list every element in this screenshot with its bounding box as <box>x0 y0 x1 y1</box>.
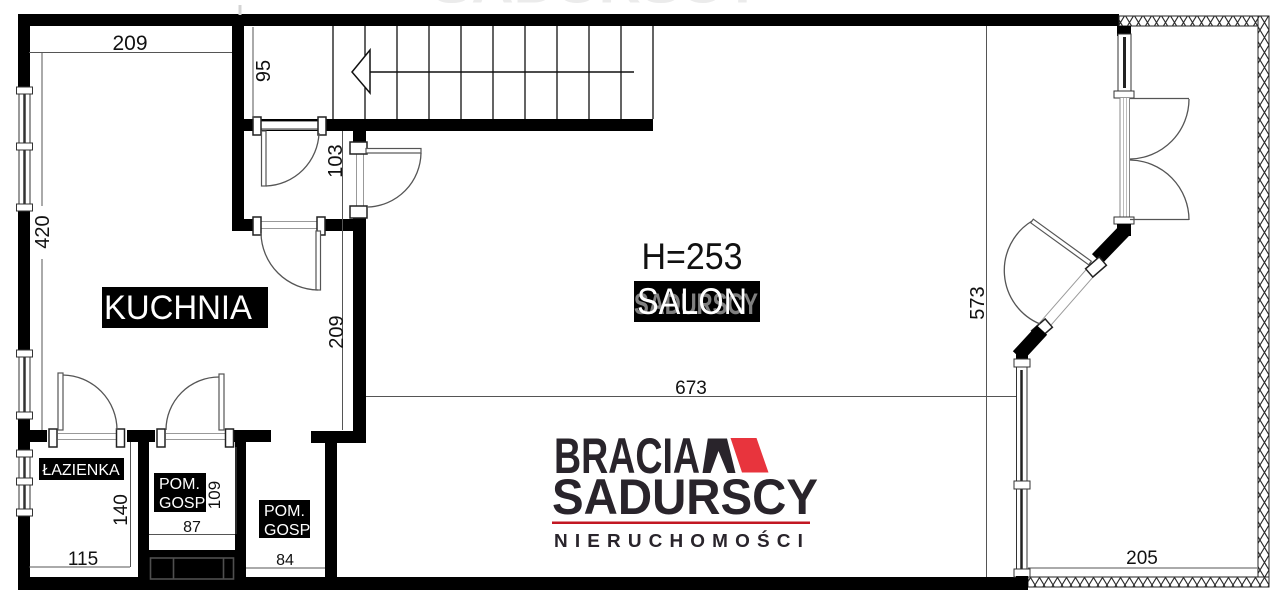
svg-text:420: 420 <box>32 215 54 248</box>
svg-text:GOSP: GOSP <box>159 495 205 512</box>
svg-text:H=253: H=253 <box>642 235 743 277</box>
svg-text:KUCHNIA: KUCHNIA <box>104 289 252 327</box>
svg-text:84: 84 <box>276 552 294 569</box>
svg-text:673: 673 <box>675 378 707 399</box>
svg-text:95: 95 <box>253 60 275 82</box>
svg-text:NIERUCHOMOŚCI: NIERUCHOMOŚCI <box>554 530 810 551</box>
svg-text:GOSP: GOSP <box>264 522 310 539</box>
svg-text:SADURSCY: SADURSCY <box>552 469 818 525</box>
svg-text:209: 209 <box>112 32 147 55</box>
svg-text:POM.: POM. <box>159 476 200 493</box>
svg-text:POM.: POM. <box>264 503 305 520</box>
svg-text:573: 573 <box>967 286 989 319</box>
svg-text:103: 103 <box>325 144 347 177</box>
svg-text:SADURSCY: SADURSCY <box>432 0 762 14</box>
svg-text:87: 87 <box>183 519 201 536</box>
svg-text:205: 205 <box>1126 548 1158 569</box>
svg-text:115: 115 <box>68 549 98 570</box>
svg-text:109: 109 <box>205 481 224 509</box>
svg-text:140: 140 <box>111 494 132 526</box>
svg-text:ŁAZIENKA: ŁAZIENKA <box>42 462 120 479</box>
svg-text:209: 209 <box>326 315 348 348</box>
svg-text:SALON: SALON <box>637 281 747 322</box>
